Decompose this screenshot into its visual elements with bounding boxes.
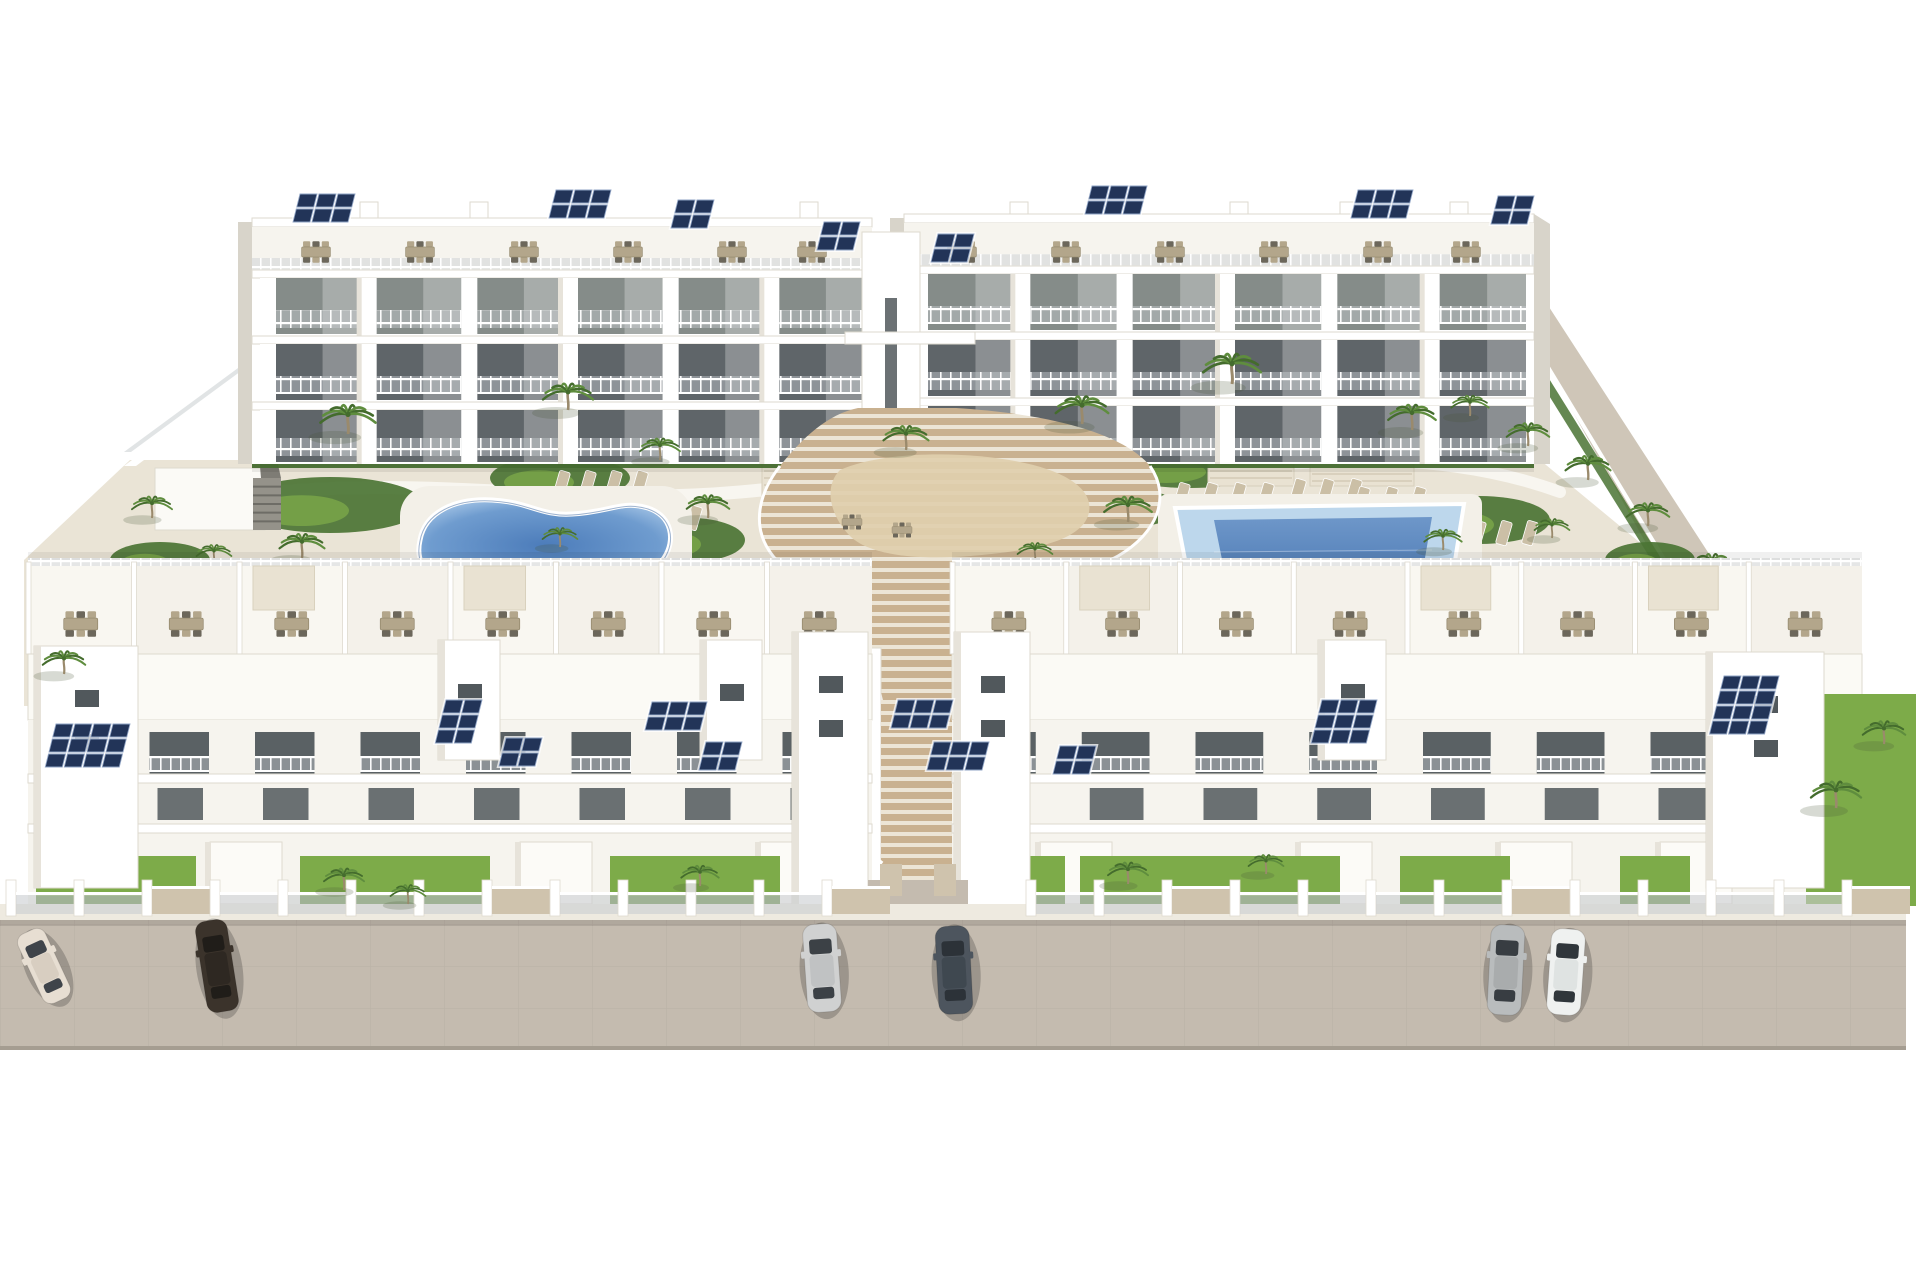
fence-panel	[152, 886, 210, 914]
palm-shadow	[874, 447, 917, 458]
chair	[710, 630, 719, 637]
facade-pier	[1424, 340, 1440, 398]
palm-crown	[706, 500, 710, 504]
chair	[738, 241, 745, 247]
solar-panel	[587, 205, 607, 218]
scene-svg	[0, 0, 1920, 1280]
chair	[1790, 611, 1799, 618]
solar-panel	[969, 742, 989, 755]
palm-trunk	[568, 392, 569, 410]
lower-window	[1545, 788, 1599, 820]
chair	[511, 241, 518, 247]
chair	[1384, 257, 1391, 263]
chair	[1374, 257, 1381, 263]
chair	[1053, 257, 1060, 263]
chair	[510, 611, 519, 618]
fence-pier	[1570, 880, 1580, 916]
chair	[1062, 241, 1069, 247]
car-roof	[941, 956, 966, 989]
solar-panel	[1755, 691, 1775, 704]
chair	[407, 241, 414, 247]
palm-shadow	[673, 883, 709, 892]
terrace-pergola	[1421, 566, 1491, 610]
terrace-divider	[1178, 562, 1183, 654]
facade-pier	[1014, 274, 1030, 332]
palm-trunk	[408, 891, 409, 904]
solar-panel	[699, 757, 719, 770]
chair	[1471, 611, 1480, 618]
link-bridge	[845, 332, 975, 344]
palm-shadow	[1556, 477, 1599, 488]
chair	[1790, 630, 1799, 637]
solar-panel	[1389, 205, 1409, 218]
facade-pier	[763, 344, 779, 402]
fence-panel	[560, 892, 618, 914]
chair	[520, 241, 527, 247]
fence-rail	[832, 886, 890, 889]
solar-panel	[462, 700, 482, 713]
palm-crown	[1646, 508, 1650, 512]
palm-crown	[1264, 859, 1267, 862]
chair	[1157, 257, 1164, 263]
fence-panel	[628, 892, 686, 914]
module-shade	[1010, 340, 1015, 398]
car-windshield	[202, 934, 225, 953]
solar-panel	[1072, 761, 1092, 774]
fence-pier	[142, 880, 152, 916]
balcony-railing	[1423, 756, 1491, 772]
balcony-railing	[361, 756, 421, 772]
chair	[719, 257, 726, 263]
palm-shadow	[1497, 443, 1538, 453]
lower-window	[158, 788, 204, 820]
fence-panel	[84, 892, 142, 914]
table	[697, 618, 731, 630]
chair	[1118, 630, 1127, 637]
module-shade	[1215, 406, 1220, 464]
chair	[1462, 241, 1469, 247]
palm-trunk	[152, 503, 153, 518]
chair	[1357, 611, 1366, 618]
fence-rail	[424, 892, 482, 895]
chair	[1346, 630, 1355, 637]
palm-shadow	[1378, 427, 1424, 438]
chair	[604, 630, 613, 637]
facade-pier	[260, 278, 276, 336]
terrace-pergola	[464, 566, 526, 610]
palm-crown	[1229, 361, 1235, 367]
chair	[624, 241, 631, 247]
chair	[815, 611, 824, 618]
chair	[182, 611, 191, 618]
chair	[1107, 611, 1116, 618]
chair	[1166, 257, 1173, 263]
chair	[1221, 611, 1230, 618]
palm-shadow	[1853, 741, 1894, 751]
solar-panel	[553, 190, 573, 203]
module-shade	[558, 278, 563, 336]
palm-trunk	[344, 875, 345, 890]
solar-panel-array	[889, 698, 956, 730]
solar-panel	[454, 730, 474, 743]
fence-pier	[74, 880, 84, 916]
solar-panel	[1057, 746, 1077, 759]
solar-panel	[1330, 730, 1350, 743]
facade-pier	[1014, 340, 1030, 398]
dining-set	[1219, 611, 1253, 637]
balcony-railing	[1235, 438, 1321, 456]
chair	[906, 534, 911, 538]
palm-trunk	[1128, 505, 1129, 522]
balcony-railing	[377, 376, 462, 394]
palm-trunk	[708, 502, 709, 518]
palm-crown	[558, 532, 561, 535]
tower-side-shade	[792, 632, 799, 906]
solar-panel	[1713, 706, 1733, 719]
facade-pier	[1117, 274, 1133, 332]
palm-trunk	[1443, 536, 1444, 550]
solar-panel	[1732, 706, 1752, 719]
solar-panel	[1759, 676, 1779, 689]
tower-window	[75, 690, 99, 707]
table	[591, 618, 625, 630]
chair	[604, 611, 613, 618]
chair	[624, 257, 631, 263]
solar-panel	[703, 742, 723, 755]
fence-rail	[1172, 886, 1230, 889]
palm-trunk	[660, 445, 661, 460]
solar-panel	[954, 234, 974, 247]
table	[380, 618, 414, 630]
palm-shadow	[1099, 881, 1137, 891]
chair	[634, 257, 641, 263]
fence-panel	[1036, 892, 1094, 914]
palm-trunk	[906, 434, 907, 450]
chair	[900, 523, 905, 527]
dining-set	[718, 241, 747, 263]
chair	[393, 611, 402, 618]
fence-rail	[1036, 892, 1094, 895]
fence-panel	[1444, 892, 1502, 914]
palm-crown	[150, 501, 154, 505]
chair	[1261, 257, 1268, 263]
architectural-render	[0, 0, 1920, 1280]
solar-panel	[671, 215, 691, 228]
balcony-railing	[679, 310, 764, 328]
chair	[738, 257, 745, 263]
chair	[721, 611, 730, 618]
chair	[1687, 611, 1696, 618]
chair	[856, 526, 861, 530]
chair	[843, 515, 848, 519]
chair	[1573, 611, 1582, 618]
balcony-railing	[255, 756, 315, 772]
fence-panel	[16, 892, 74, 914]
table	[510, 247, 539, 257]
chair	[994, 611, 1003, 618]
fence-pier	[1026, 880, 1036, 916]
chair	[615, 611, 624, 618]
chair	[893, 523, 898, 527]
dining-set	[64, 611, 98, 637]
chair	[382, 630, 391, 637]
table	[1106, 618, 1140, 630]
fence-rail	[696, 892, 754, 895]
fence-panel	[1852, 886, 1910, 914]
chair	[499, 611, 508, 618]
car-rear-glass	[944, 989, 966, 1002]
fence-panel	[1240, 892, 1298, 914]
chair	[1812, 611, 1821, 618]
table	[1561, 618, 1595, 630]
chair	[1460, 630, 1469, 637]
solar-panel	[331, 209, 351, 222]
fence-pier	[1502, 880, 1512, 916]
solar-panel	[49, 739, 69, 752]
dining-set	[302, 241, 331, 263]
table	[802, 618, 836, 630]
dining-set	[1106, 611, 1140, 637]
solar-panel	[668, 702, 688, 715]
dining-set	[1333, 611, 1367, 637]
solar-panel-array	[929, 232, 977, 264]
chair	[1573, 630, 1582, 637]
solar-panel-array	[547, 188, 614, 220]
dining-set	[1674, 611, 1708, 637]
terrace-divider	[1746, 562, 1751, 654]
chair	[487, 611, 496, 618]
solar-panel	[1748, 721, 1768, 734]
chair	[303, 241, 310, 247]
chair	[1374, 241, 1381, 247]
fence-pier	[1706, 880, 1716, 916]
solar-panel	[106, 739, 126, 752]
facade-pier	[763, 410, 779, 464]
solar-panel	[1370, 205, 1390, 218]
balcony-railing	[1235, 372, 1321, 390]
solar-panel	[722, 742, 742, 755]
terrace-pergola	[1080, 566, 1150, 610]
chair	[1460, 611, 1469, 618]
chair	[65, 611, 74, 618]
chair	[1280, 257, 1287, 263]
balcony-railing	[477, 438, 562, 456]
palm-shadow	[123, 515, 161, 525]
balcony-railing	[779, 376, 864, 394]
solar-panel	[1729, 721, 1749, 734]
table	[992, 618, 1026, 630]
fence-pier	[1774, 880, 1784, 916]
solar-panel	[45, 754, 65, 767]
solar-panel	[591, 190, 611, 203]
chair	[182, 630, 191, 637]
solar-panel	[83, 754, 103, 767]
fence-panel	[764, 892, 822, 914]
solar-panel	[1357, 700, 1377, 713]
module-shade	[558, 344, 563, 402]
facade-pier	[1117, 340, 1133, 398]
solar-panel	[568, 205, 588, 218]
palm-shadow	[1241, 871, 1275, 879]
terrace-divider	[1405, 562, 1410, 654]
solar-panel	[435, 730, 455, 743]
chair	[1129, 630, 1138, 637]
car-roof	[809, 954, 835, 987]
chair	[634, 241, 641, 247]
chair	[698, 611, 707, 618]
balcony-railing	[679, 438, 764, 456]
dining-set	[510, 241, 539, 263]
dining-set	[275, 611, 309, 637]
solar-panel-array	[643, 700, 710, 732]
chair	[1280, 241, 1287, 247]
chair	[710, 611, 719, 618]
dining-set	[1260, 241, 1289, 263]
balcony-railing	[276, 376, 361, 394]
facade-pier	[461, 344, 477, 402]
chair	[77, 611, 86, 618]
palm-shadow	[677, 515, 718, 525]
chair	[426, 257, 433, 263]
chair	[1166, 241, 1173, 247]
table	[406, 247, 435, 257]
palm-trunk	[1128, 869, 1129, 884]
palm-trunk	[560, 534, 561, 547]
fence-rail	[1104, 892, 1162, 895]
solar-panel-array	[1051, 744, 1099, 776]
palm-crown	[345, 412, 350, 417]
facade-pier	[260, 344, 276, 402]
facade-pier	[1321, 340, 1337, 398]
solar-panel	[1374, 190, 1394, 203]
chair	[1221, 630, 1230, 637]
palm-crown	[406, 889, 409, 892]
balcony-railing	[578, 310, 663, 328]
palm-shadow	[532, 407, 580, 419]
chair	[850, 526, 855, 530]
chair	[900, 534, 905, 538]
solar-panel	[1104, 201, 1124, 214]
solar-panel	[68, 739, 88, 752]
table	[1364, 247, 1393, 257]
palm-shadow	[315, 887, 353, 897]
palm-crown	[342, 873, 346, 877]
facade-pier	[1219, 406, 1235, 464]
terrace-divider	[1291, 562, 1296, 654]
chair	[299, 630, 308, 637]
chair	[1062, 257, 1069, 263]
solar-panel	[458, 715, 478, 728]
module-shade	[357, 344, 362, 402]
chair	[1270, 241, 1277, 247]
car-mirror	[801, 952, 805, 959]
table	[275, 618, 309, 630]
chair	[1261, 241, 1268, 247]
palm-trunk	[1528, 430, 1529, 446]
solar-panel	[891, 715, 911, 728]
solar-panel	[965, 757, 985, 770]
chair	[1698, 611, 1707, 618]
solar-panel-array	[669, 198, 717, 230]
chair	[303, 257, 310, 263]
palm-trunk	[1412, 413, 1413, 430]
terrace-unit	[1180, 566, 1294, 654]
tower-side-shade	[1706, 652, 1713, 888]
table	[1447, 618, 1481, 630]
palm-crown	[1126, 503, 1131, 508]
facade-slab	[28, 774, 872, 783]
chair	[1005, 611, 1014, 618]
balcony-railing	[1440, 306, 1526, 324]
balcony-railing	[1133, 306, 1219, 324]
solar-panel	[549, 205, 569, 218]
palm-crown	[1079, 403, 1084, 408]
terrace-unit	[345, 566, 451, 654]
solar-panel	[817, 237, 837, 250]
dining-set	[591, 611, 625, 637]
chair	[1698, 630, 1707, 637]
chair	[312, 257, 319, 263]
chair	[721, 630, 730, 637]
chair	[804, 611, 813, 618]
dining-set	[614, 241, 643, 263]
balcony-railing	[1030, 372, 1116, 390]
facade-pier	[461, 278, 477, 336]
chair	[1472, 257, 1479, 263]
solar-panel	[1349, 730, 1369, 743]
palm-crown	[658, 443, 662, 447]
facade-pier	[1424, 274, 1440, 332]
solar-panel-array	[497, 736, 545, 768]
balcony-railing	[276, 310, 361, 328]
fence-pier	[6, 880, 16, 916]
terrace-divider	[26, 562, 31, 654]
solar-panel	[1495, 196, 1515, 209]
module-shade	[1420, 340, 1425, 398]
fence-panel	[1716, 892, 1774, 914]
facade-slab	[28, 824, 872, 833]
solar-panel	[1127, 186, 1147, 199]
table	[1052, 247, 1081, 257]
solar-panel	[1053, 761, 1073, 774]
chair	[1243, 611, 1252, 618]
chair	[1453, 257, 1460, 263]
facade-pier	[663, 278, 679, 336]
palm-trunk	[348, 414, 349, 434]
chair	[893, 534, 898, 538]
solar-panel	[1710, 721, 1730, 734]
fence-pier	[1842, 880, 1852, 916]
chair	[1453, 241, 1460, 247]
dining-set	[1156, 241, 1185, 263]
table	[1260, 247, 1289, 257]
chair	[322, 241, 329, 247]
solar-panel-array	[1349, 188, 1416, 220]
lower-window	[1090, 788, 1144, 820]
tower-window	[981, 720, 1005, 737]
fence-rail	[356, 892, 414, 895]
dining-set	[406, 241, 435, 263]
solar-panel	[1076, 746, 1096, 759]
terrace-divider	[659, 562, 664, 654]
table	[1674, 618, 1708, 630]
solar-panel	[694, 200, 714, 213]
chair	[1676, 630, 1685, 637]
palm-crown	[1526, 428, 1530, 432]
solar-panel-array	[925, 740, 992, 772]
car-windshield	[941, 940, 964, 956]
solar-panel	[1510, 211, 1530, 224]
